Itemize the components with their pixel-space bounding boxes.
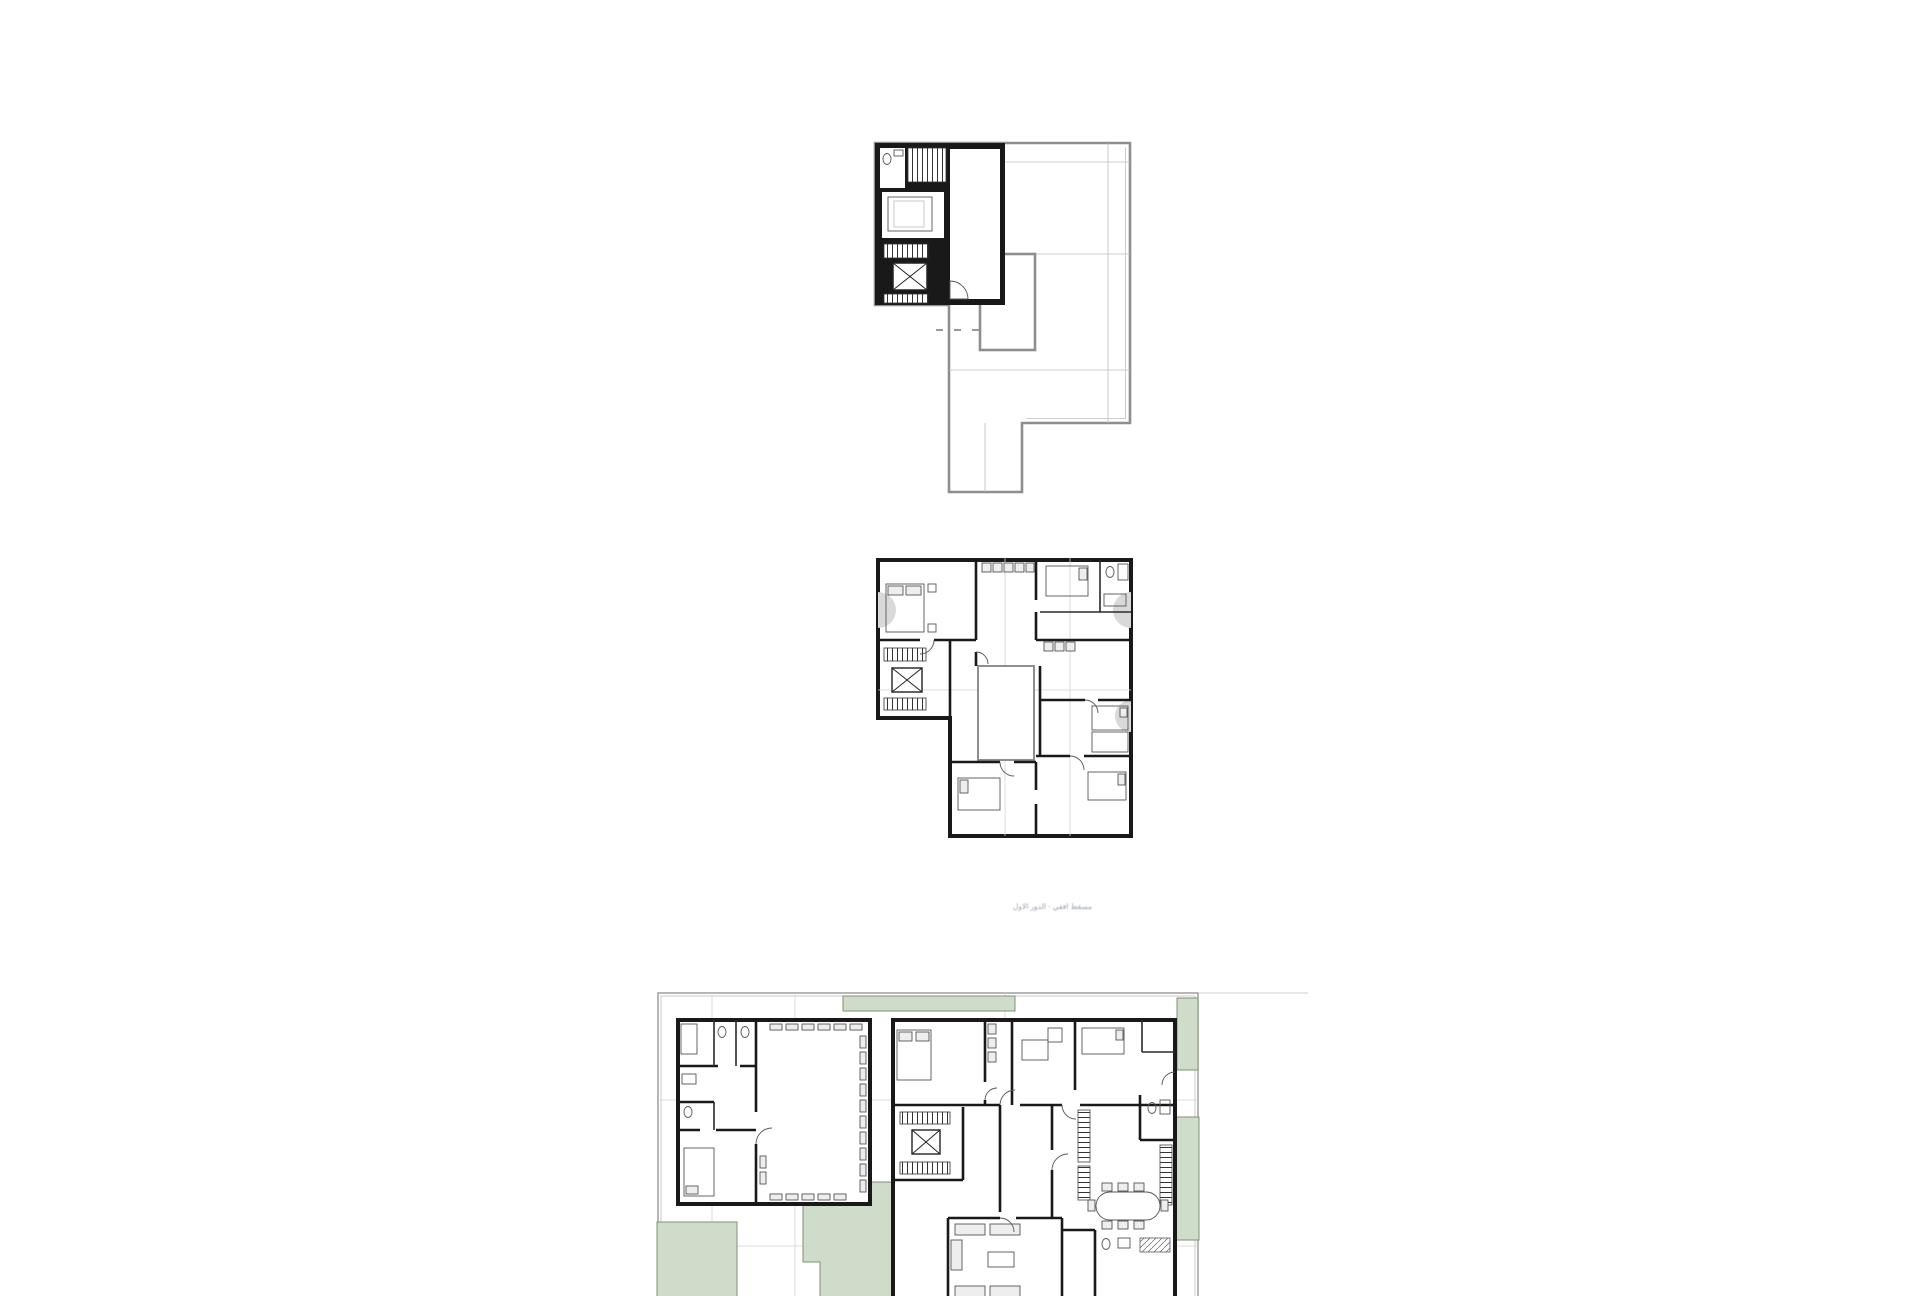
right-building [893,1020,1175,1296]
first-floor-plan [876,556,1136,840]
courtyard-void [978,666,1034,760]
drawing-sheet: { "caption": { "text": "مسقط افقي - الدو… [0,0,1920,1296]
roof-plan [873,138,1137,496]
ground-floor-plan-drawing [652,988,1312,1296]
ground-floor-site-plan [652,988,1312,1296]
first-floor-plan-drawing [876,556,1136,840]
stairs [884,244,928,258]
roof-core [875,143,1005,305]
left-building [678,1020,870,1204]
stairs [884,294,928,303]
plan-caption: مسقط افقي - الدور الاول [995,899,1110,915]
roof-plan-drawing [873,138,1137,496]
